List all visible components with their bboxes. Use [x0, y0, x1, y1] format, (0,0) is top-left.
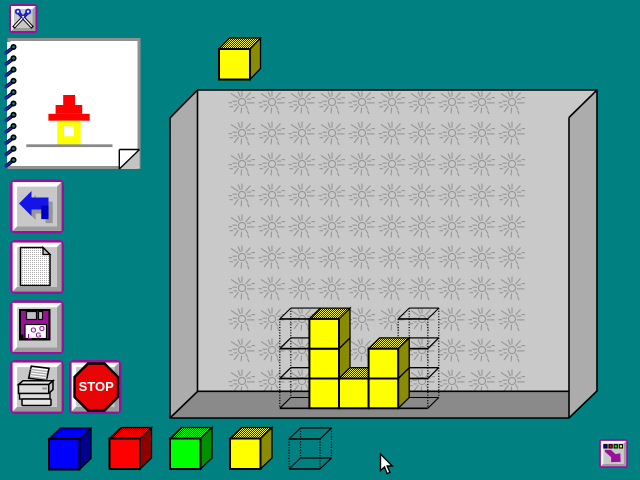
svg-text:G: G: [36, 331, 42, 340]
svg-text:L: L: [28, 332, 33, 341]
svg-text:STOP: STOP: [79, 379, 114, 394]
